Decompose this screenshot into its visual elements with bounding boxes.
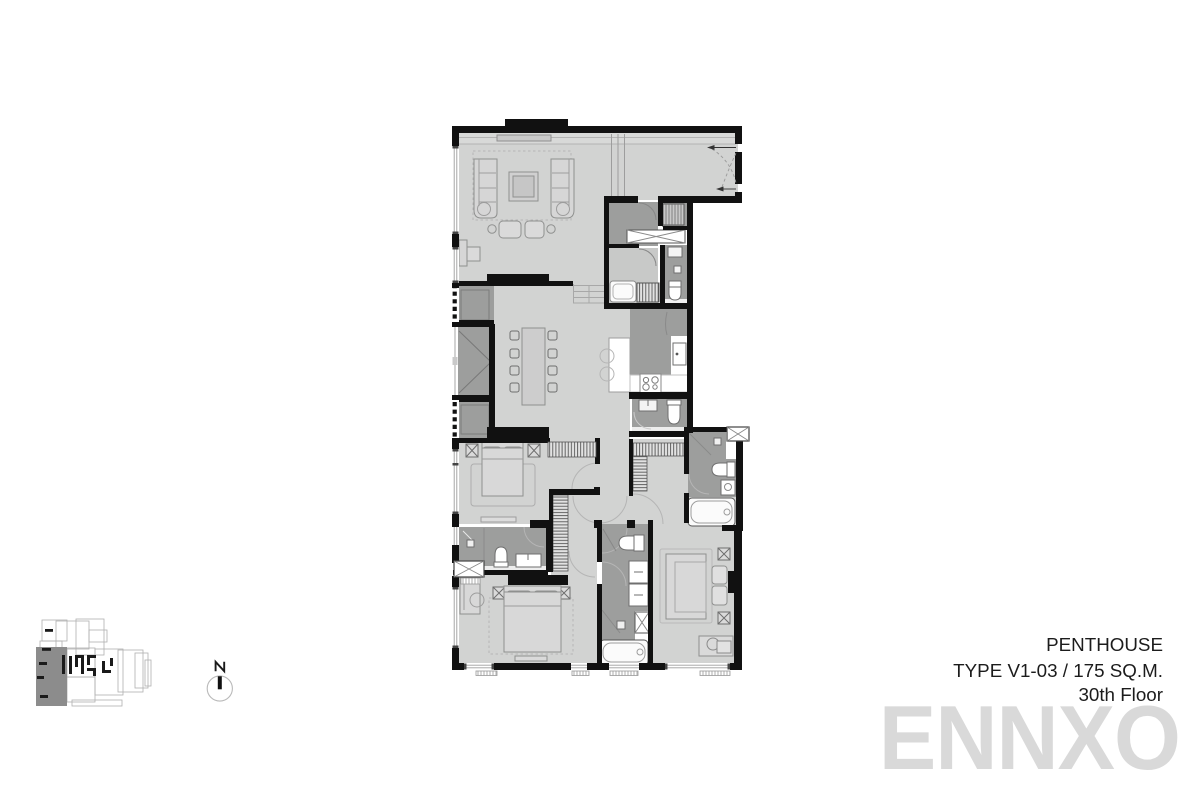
svg-text:PENTHOUSE: PENTHOUSE [1046, 634, 1163, 655]
svg-text:ENNXO: ENNXO [879, 687, 1180, 789]
svg-text:TYPE V1-03 / 175 SQ.M.: TYPE V1-03 / 175 SQ.M. [953, 660, 1163, 681]
